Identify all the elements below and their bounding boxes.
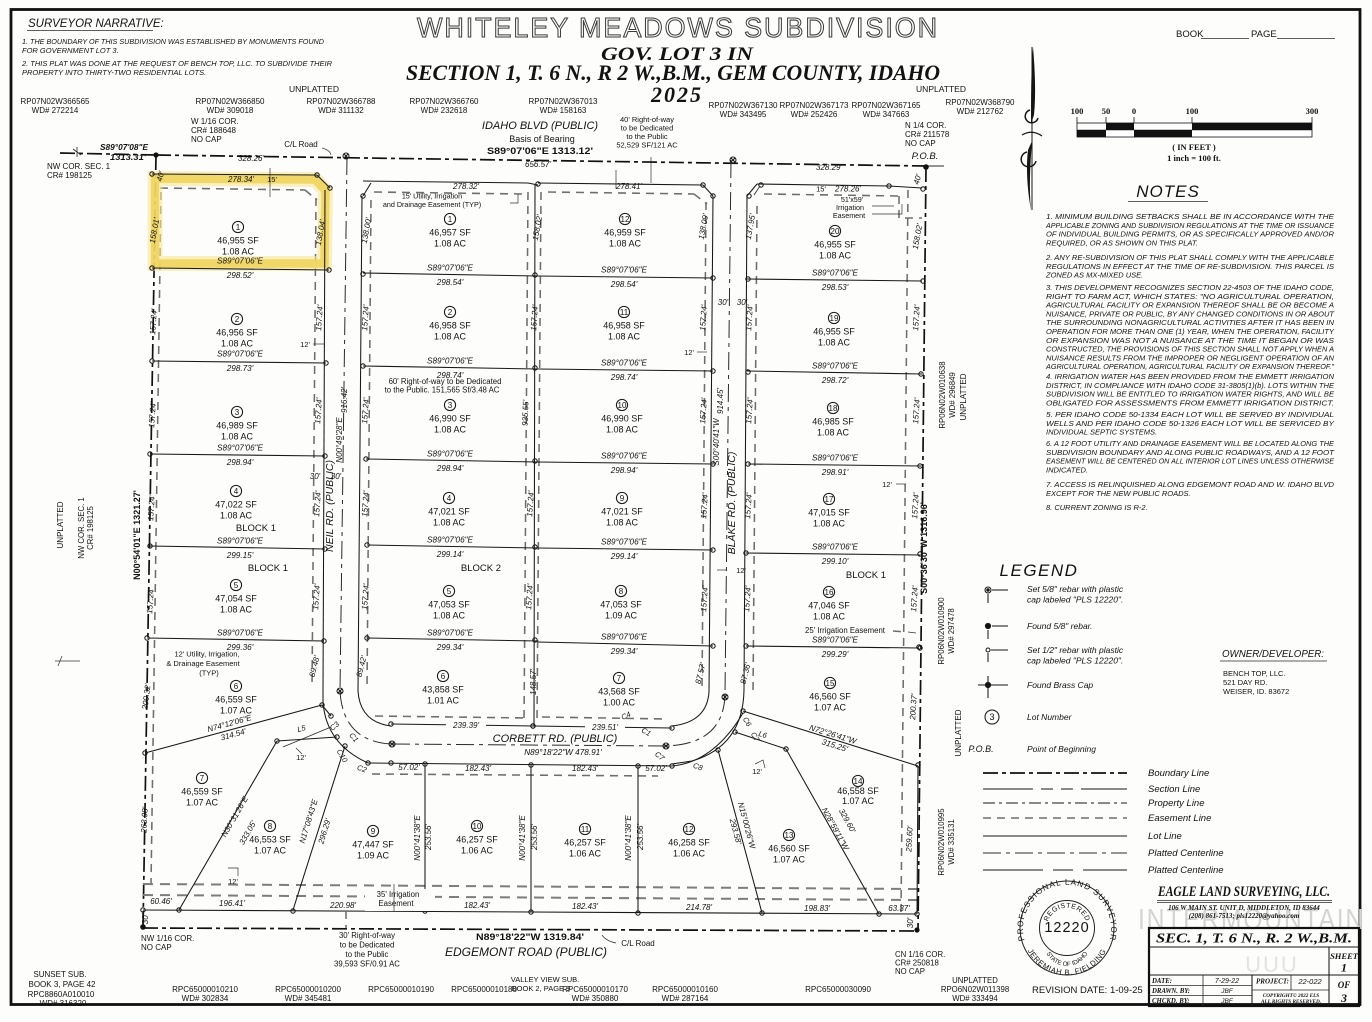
svg-text:ALL RIGHTS RESERVED.: ALL RIGHTS RESERVED. [1260,999,1321,1005]
svg-text:WD# 309018: WD# 309018 [207,106,254,115]
svg-text:278.26': 278.26' [834,185,861,194]
svg-text:3: 3 [448,401,453,410]
svg-text:157.24': 157.24' [360,583,371,610]
svg-text:EXCEPT FOR THE NEW PUBLIC: EXCEPT FOR THE NEW PUBLIC ROADS. [1046,489,1191,498]
svg-text:46,553 SF: 46,553 SF [249,835,291,845]
svg-text:57.02': 57.02' [645,764,667,773]
svg-text:157.24': 157.24' [360,397,371,424]
svg-text:1.06 AC: 1.06 AC [673,849,706,859]
svg-text:6: 6 [441,672,446,681]
svg-text:Easement: Easement [833,211,865,220]
svg-text:S89°07'06"E: S89°07'06"E [812,636,859,645]
svg-text:4: 4 [234,487,239,496]
svg-text:REQUIRED, OR AS SHOWN ON: REQUIRED, OR AS SHOWN ON THIS PLAT. [1046,238,1198,247]
svg-text:S89°07'06"E: S89°07'06"E [217,350,264,359]
svg-text:1.08 AC: 1.08 AC [433,611,466,621]
svg-text:157.24': 157.24' [313,397,324,424]
svg-text:CORBETT RD. (PUBLIC): CORBETT RD. (PUBLIC) [493,733,618,745]
svg-text:8: 8 [268,822,273,831]
svg-text:BOOK: BOOK [1176,29,1204,40]
svg-text:46,957 SF: 46,957 SF [429,228,471,238]
svg-text:RP07N02W366850: RP07N02W366850 [196,97,265,106]
svg-text:OR EXPANSION WAS NOT A NU: OR EXPANSION WAS NOT A NUISANCE AT THE T… [1046,336,1334,345]
svg-text:148.57': 148.57' [529,669,538,695]
svg-text:2. ANY RE-SUBDIVISION OF T: 2. ANY RE-SUBDIVISION OF THIS PLAT SHALL… [1045,253,1335,262]
svg-text:63.37': 63.37' [888,904,910,913]
svg-text:N00°41'38"E: N00°41'38"E [413,815,422,861]
svg-text:NW COR. SEC. 1: NW COR. SEC. 1 [77,497,86,559]
svg-text:RPC65000030090: RPC65000030090 [805,985,871,994]
svg-text:WELLS AND PER IDAHO CODE: WELLS AND PER IDAHO CODE 50-1326 EACH LO… [1046,419,1335,428]
svg-text:NUISANCE, PRIVATE OR PUBLIC: NUISANCE, PRIVATE OR PUBLIC, BY ANY CHAN… [1046,309,1335,318]
svg-text:12: 12 [621,215,630,224]
svg-text:Found Brass Cap: Found Brass Cap [1027,680,1093,690]
svg-text:S89°07'06"E: S89°07'06"E [601,359,648,368]
svg-text:PROPERTY INTO THIRTY-TWO RE: PROPERTY INTO THIRTY-TWO RESIDENTIAL LOT… [22,68,206,77]
svg-text:NO CAP: NO CAP [895,967,925,976]
svg-text:299.15': 299.15' [226,551,254,560]
svg-text:10: 10 [473,822,482,831]
svg-text:4. IRRIGATION WATER HAS BE: 4. IRRIGATION WATER HAS BEEN PROVIDED FR… [1046,372,1335,381]
svg-text:12': 12' [882,480,892,489]
svg-text:298.73': 298.73' [226,364,254,373]
svg-text:INDIVIDUAL SEPTIC SYSTEMS.: INDIVIDUAL SEPTIC SYSTEMS. [1046,428,1157,437]
svg-text:298.54': 298.54' [610,280,638,289]
svg-text:157.24': 157.24' [524,583,535,610]
svg-text:RP07N02W367013: RP07N02W367013 [529,97,598,106]
svg-text:914.45': 914.45' [716,388,725,414]
svg-text:CR# 198125: CR# 198125 [86,505,95,549]
svg-text:N00°41'38"E: N00°41'38"E [518,815,527,861]
svg-text:UNPLATTED: UNPLATTED [56,501,65,548]
svg-text:1.06 AC: 1.06 AC [461,846,494,856]
svg-text:253.56': 253.56' [424,824,433,851]
svg-text:1.07 AC: 1.07 AC [186,798,219,808]
svg-text:157.24': 157.24' [698,304,709,331]
svg-text:46,985 SF: 46,985 SF [812,417,854,427]
svg-text:299.10': 299.10' [821,557,849,566]
svg-text:157.24': 157.24' [744,397,755,424]
svg-text:RPC8860A010010: RPC8860A010010 [28,990,95,999]
svg-text:3. THIS DEVELOPMENT RECOGNIZ: 3. THIS DEVELOPMENT RECOGNIZES SECTION 2… [1046,283,1334,292]
svg-text:198.83': 198.83' [804,904,830,913]
svg-text:47,015 SF: 47,015 SF [808,508,850,518]
svg-text:REGULATIONS IN EFFECT AT T: REGULATIONS IN EFFECT AT THE TIME OF RE-… [1046,262,1334,271]
svg-text:RIGHT TO FARM ACT, WHICH: RIGHT TO FARM ACT, WHICH STATES: "NO AGR… [1046,292,1334,301]
svg-text:1.07 AC: 1.07 AC [814,703,847,713]
svg-text:299.14': 299.14' [610,552,638,561]
svg-text:WHITELEY MEADOWS SUBDIVISION: WHITELEY MEADOWS SUBDIVISION [417,12,939,43]
svg-text:30': 30' [906,917,915,928]
svg-text:P.O.B.: P.O.B. [912,151,939,162]
svg-text:1.08 AC: 1.08 AC [220,511,253,521]
svg-text:15: 15 [826,679,835,688]
svg-text:S89°07'08"E: S89°07'08"E [100,143,149,152]
svg-text:239.51': 239.51' [591,723,618,732]
svg-text:1.07 AC: 1.07 AC [254,846,287,856]
svg-text:UUU: UUU [1245,952,1299,977]
svg-text:WD# 212762: WD# 212762 [957,107,1004,116]
svg-text:N00°49'28"E: N00°49'28"E [335,417,344,463]
svg-text:& Drainage Easement: & Drainage Easement [166,659,240,668]
svg-text:1.06 AC: 1.06 AC [569,849,602,859]
svg-text:196.41': 196.41' [219,899,245,908]
svg-text:13: 13 [785,831,794,840]
svg-text:43,858 SF: 43,858 SF [422,685,464,695]
svg-text:1. MINIMUM BUILDING SETBACK: 1. MINIMUM BUILDING SETBACKS SHALL BE IN… [1046,212,1335,221]
svg-text:12220: 12220 [1044,920,1089,936]
svg-text:S89°07'06"E: S89°07'06"E [601,266,648,275]
svg-text:14: 14 [854,777,863,786]
svg-text:CR# 198125: CR# 198125 [47,171,92,180]
svg-text:6: 6 [234,682,239,691]
svg-text:WD# 347663: WD# 347663 [863,110,910,119]
svg-text:WD# 158163: WD# 158163 [540,106,587,115]
svg-text:100: 100 [1186,106,1199,116]
svg-text:( IN FEET ): ( IN FEET ) [1172,142,1216,152]
svg-text:Platted Centerline: Platted Centerline [1148,848,1224,859]
svg-text:298.94': 298.94' [226,458,254,467]
svg-text:11: 11 [581,825,590,834]
svg-text:12': 12' [228,877,238,886]
svg-text:8: 8 [619,587,624,596]
svg-text:3: 3 [989,712,994,722]
svg-text:1.08 AC: 1.08 AC [433,518,466,528]
svg-text:1.08 AC: 1.08 AC [818,338,851,348]
svg-text:1.08 AC: 1.08 AC [817,428,850,438]
svg-text:1.00 AC: 1.00 AC [603,698,636,708]
svg-text:1.08 AC: 1.08 AC [221,432,254,442]
svg-text:INDICATED.: INDICATED. [1046,465,1088,474]
svg-text:9: 9 [620,494,625,503]
svg-text:OBLIGATED FOR ASSESSMENTS F: OBLIGATED FOR ASSESSMENTS FROM EMMETT IR… [1046,398,1334,407]
svg-text:7. ACCESS IS RELINQUISHED: 7. ACCESS IS RELINQUISHED ALONG EDGEMONT… [1046,480,1335,489]
svg-text:1.01 AC: 1.01 AC [427,696,460,706]
svg-text:WD# 232618: WD# 232618 [421,106,468,115]
svg-text:BLAKE RD. (PUBLIC): BLAKE RD. (PUBLIC) [726,452,738,555]
svg-text:P.O.B.: P.O.B. [968,744,993,754]
svg-text:11: 11 [620,308,629,317]
svg-text:46,559 SF: 46,559 SF [181,787,223,797]
svg-text:157.24': 157.24' [743,492,754,519]
svg-text:RPO6N02W011398: RPO6N02W011398 [941,985,1009,994]
svg-text:N00°54'01"E 1321.27': N00°54'01"E 1321.27' [132,490,142,580]
svg-text:EDGEMONT ROAD (PUBLIC): EDGEMONT ROAD (PUBLIC) [445,945,607,959]
svg-text:1.08 AC: 1.08 AC [222,247,255,257]
svg-text:UNPLATTED: UNPLATTED [952,976,998,985]
svg-text:THE SURROUNDING NONAGRICULTU: THE SURROUNDING NONAGRICULTURAL ACTIVITI… [1046,318,1335,327]
svg-text:46,257 SF: 46,257 SF [564,838,606,848]
svg-text:WD# 316320: WD# 316320 [40,999,87,1008]
svg-text:3: 3 [1340,991,1347,1005]
svg-text:APPLICABLE ZONING AND SUBDI: APPLICABLE ZONING AND SUBDIVISION REGULA… [1045,221,1335,230]
svg-text:BLOCK 1: BLOCK 1 [248,563,288,574]
svg-text:7-29-22: 7-29-22 [1215,978,1239,985]
svg-text:WD# 350880: WD# 350880 [572,994,619,1003]
svg-text:RP07N02W367165: RP07N02W367165 [852,101,921,110]
svg-text:46,958 SF: 46,958 SF [429,321,471,331]
svg-text:4: 4 [447,494,452,503]
svg-text:2025: 2025 [650,82,703,107]
svg-text:46,955 SF: 46,955 SF [813,327,855,337]
svg-text:COPYRIGHT© 2022 ELS: COPYRIGHT© 2022 ELS [1263,992,1319,999]
svg-text:IDAHO BLVD (PUBLIC): IDAHO BLVD (PUBLIC) [482,120,598,132]
svg-text:WEISER, ID. 83672: WEISER, ID. 83672 [1223,687,1289,696]
svg-text:298.94': 298.94' [436,464,464,473]
svg-text:1.08 AC: 1.08 AC [606,425,639,435]
svg-text:NO CAP: NO CAP [141,943,172,952]
svg-text:8. CURRENT ZONING IS R-2.: 8. CURRENT ZONING IS R-2. [1046,503,1148,512]
svg-text:5: 5 [234,581,239,590]
svg-text:SEC. 1, T. 6 N., R. 2 W: SEC. 1, T. 6 N., R. 2 W.,B.M. [1156,931,1352,946]
svg-text:1.08 AC: 1.08 AC [813,519,846,529]
svg-text:PROJECT:: PROJECT: [1256,978,1289,986]
svg-text:157.24': 157.24' [360,490,371,517]
svg-text:RP07N02W367130: RP07N02W367130 [709,101,778,110]
svg-text:46,956 SF: 46,956 SF [216,328,258,338]
svg-text:WD# 335131: WD# 335131 [947,819,956,865]
svg-text:BENCH TOP, LLC.: BENCH TOP, LLC. [1223,669,1286,678]
svg-text:47,022 SF: 47,022 SF [215,500,257,510]
svg-text:RP06N02W010638: RP06N02W010638 [938,361,947,428]
svg-text:1.08 AC: 1.08 AC [434,239,467,249]
svg-text:47,447 SF: 47,447 SF [352,840,394,850]
svg-text:57.02': 57.02' [398,763,420,772]
svg-text:WD# 272214: WD# 272214 [32,106,79,115]
svg-text:1. THE BOUNDARY OF THIS: 1. THE BOUNDARY OF THIS SUBDIVISION WAS … [22,37,325,46]
svg-text:298.94': 298.94' [610,466,638,475]
svg-text:43,568 SF: 43,568 SF [598,687,640,697]
svg-text:DRAWN. BY:: DRAWN. BY: [1151,988,1190,995]
svg-text:47,053 SF: 47,053 SF [600,600,642,610]
svg-text:182.43': 182.43' [464,901,490,910]
svg-text:WD# 296849: WD# 296849 [948,372,957,418]
svg-text:298.91': 298.91' [821,468,849,477]
svg-text:BLOCK 1: BLOCK 1 [236,523,276,534]
svg-text:46,558 SF: 46,558 SF [837,786,879,796]
svg-text:to the Public: to the Public [346,950,389,959]
svg-text:S89°07'06"E: S89°07'06"E [812,454,859,463]
svg-text:RP07N02W367173: RP07N02W367173 [780,101,849,110]
svg-text:47,021 SF: 47,021 SF [428,507,470,517]
svg-text:UNPLATTED: UNPLATTED [954,709,963,756]
svg-text:157.24': 157.24' [360,304,371,331]
svg-text:NO CAP: NO CAP [191,135,222,144]
svg-text:NO CAP: NO CAP [905,139,936,148]
svg-text:JBF: JBF [1220,998,1234,1005]
svg-text:5. PER IDAHO CODE 50-1334: 5. PER IDAHO CODE 50-1334 EACH LOT WILL … [1046,410,1334,419]
svg-text:17: 17 [825,495,834,504]
svg-text:RP07N02W366565: RP07N02W366565 [21,97,90,106]
svg-text:157.24': 157.24' [742,585,753,612]
svg-text:RP06N02W010900: RP06N02W010900 [937,597,946,665]
svg-text:CHCKD. BY:: CHCKD. BY: [1152,998,1190,1005]
svg-text:EASEMENT WILL BE CENTERED: EASEMENT WILL BE CENTERED ON ALL INTERIO… [1046,457,1335,466]
svg-text:1: 1 [448,215,453,224]
svg-text:REVISION DATE: 1-09-25: REVISION DATE: 1-09-25 [1032,985,1143,996]
svg-text:1.08 AC: 1.08 AC [819,251,852,261]
svg-text:182.43': 182.43' [572,764,598,773]
svg-text:DISTRICT, IN COMPLIANCE WIT: DISTRICT, IN COMPLIANCE WITH IDAHO CODE … [1046,381,1335,390]
svg-text:19: 19 [830,314,839,323]
svg-text:1.09 AC: 1.09 AC [605,611,638,621]
svg-text:157.24': 157.24' [525,490,536,517]
svg-text:9: 9 [371,827,376,836]
svg-text:20: 20 [831,227,840,236]
svg-text:Lot Line: Lot Line [1148,831,1182,842]
svg-text:S89°07'06"E: S89°07'06"E [601,452,648,461]
svg-text:2: 2 [235,315,240,324]
svg-text:S89°07'06"E: S89°07'06"E [217,444,264,453]
svg-text:SHEET: SHEET [1330,951,1359,961]
svg-text:1.08 AC: 1.08 AC [813,612,846,622]
svg-text:157.24': 157.24' [911,304,922,331]
svg-text:50: 50 [1102,106,1111,116]
svg-text:157.24': 157.24' [148,308,159,335]
svg-text:1.08 AC: 1.08 AC [434,425,467,435]
svg-text:935.55': 935.55' [521,399,531,426]
svg-text:157.24': 157.24' [699,492,710,519]
svg-text:DATE:: DATE: [1151,978,1172,985]
svg-text:298.54': 298.54' [436,278,464,287]
svg-text:60.46': 60.46' [150,897,172,906]
svg-text:157.24': 157.24' [314,304,325,331]
svg-text:S00°40'41"W: S00°40'41"W [712,417,721,466]
svg-text:12: 12 [685,825,694,834]
svg-text:Boundary Line: Boundary Line [1148,768,1209,779]
svg-text:S89°07'06"E: S89°07'06"E [217,257,264,266]
svg-text:WD# 345481: WD# 345481 [285,994,332,1003]
svg-text:S89°07'06"E: S89°07'06"E [217,629,264,638]
svg-text:SUBDIVISION BOUNDARY AND AL: SUBDIVISION BOUNDARY AND ALONG PUBLIC RO… [1046,448,1335,457]
svg-text:RPC65000010210: RPC65000010210 [172,985,238,994]
svg-text:15': 15' [267,175,277,184]
svg-text:157.24': 157.24' [145,587,156,614]
svg-text:46,990 SF: 46,990 SF [601,414,643,424]
svg-text:298.53': 298.53' [821,283,849,292]
svg-text:RPC65000010180: RPC65000010180 [451,985,517,994]
svg-text:UNPLATTED: UNPLATTED [289,84,339,94]
svg-text:30' Right-of-way: 30' Right-of-way [339,931,395,940]
svg-text:1.08 AC: 1.08 AC [221,339,254,349]
svg-text:WD# 252426: WD# 252426 [791,110,838,119]
svg-text:46,257 SF: 46,257 SF [456,835,498,845]
svg-text:157.24': 157.24' [146,494,157,521]
svg-text:RP07N02W366788: RP07N02W366788 [307,97,376,106]
svg-text:Platted Centerline: Platted Centerline [1148,865,1224,876]
svg-text:46,959 SF: 46,959 SF [604,228,646,238]
svg-text:S89°07'06"E: S89°07'06"E [217,537,264,546]
svg-text:47,054 SF: 47,054 SF [215,594,257,604]
svg-text:10: 10 [618,401,627,410]
svg-text:Set 1/2" rebar with plastic: Set 1/2" rebar with plastic [1027,645,1124,655]
svg-text:1 inch = 100 ft.: 1 inch = 100 ft. [1167,153,1221,163]
svg-text:JBF: JBF [1220,988,1234,995]
svg-text:Easement Line: Easement Line [1148,813,1211,824]
svg-text:(208) 861-7513; pls12220@yaho: (208) 861-7513; pls12220@yahoo.com [1189,912,1300,920]
svg-text:RPC65000010170: RPC65000010170 [562,985,628,994]
svg-text:Lot Number: Lot Number [1027,712,1073,722]
svg-text:157.24': 157.24' [529,304,540,331]
svg-text:35' Irrigation: 35' Irrigation [377,890,420,899]
svg-text:UNPLATTED: UNPLATTED [916,84,966,94]
svg-text:182.43': 182.43' [465,764,491,773]
svg-text:6. A 12 FOOT UTILITY AND: 6. A 12 FOOT UTILITY AND DRAINAGE EASEME… [1046,439,1335,448]
svg-text:C/L Road: C/L Road [621,939,655,948]
svg-text:OPERATION FOR MORE THAN ON: OPERATION FOR MORE THAN ONE (1) YEAR, WH… [1046,327,1335,336]
svg-text:Point of Beginning: Point of Beginning [1027,744,1096,754]
svg-text:WD# 302834: WD# 302834 [182,994,229,1003]
svg-text:253.56': 253.56' [530,824,539,851]
svg-text:cap labeled "PLS 12220".: cap labeled "PLS 12220". [1027,656,1123,666]
svg-text:OF INDIVIDUAL BUILDING PERM: OF INDIVIDUAL BUILDING PERMITS, OR AS SP… [1046,230,1335,239]
svg-text:157.24': 157.24' [147,401,158,428]
svg-text:278.41': 278.41' [615,182,642,191]
svg-text:46,258 SF: 46,258 SF [668,838,710,848]
svg-text:NUISANCE RESULTS FROM THE: NUISANCE RESULTS FROM THE IMPROPER OR NE… [1046,353,1335,362]
svg-text:7: 7 [617,674,622,683]
svg-text:16: 16 [825,588,834,597]
svg-text:47,021 SF: 47,021 SF [601,507,643,517]
svg-text:30': 30' [141,913,150,924]
svg-text:Set 5/8" rebar with plastic: Set 5/8" rebar with plastic [1027,584,1124,594]
svg-text:39,593 SF/0.91 AC: 39,593 SF/0.91 AC [334,960,400,969]
svg-text:RPC65000010190: RPC65000010190 [368,985,434,994]
svg-text:CONSTRUCTED, THE PROVISIONS: CONSTRUCTED, THE PROVISIONS OF THIS SECT… [1046,345,1334,354]
svg-text:UNPLATTED: UNPLATTED [959,373,968,420]
svg-text:CR# 188648: CR# 188648 [191,126,236,135]
svg-text:12': 12' [296,753,306,762]
svg-text:7: 7 [200,774,205,783]
svg-text:299.34': 299.34' [610,647,638,656]
svg-text:46,560 SF: 46,560 SF [768,844,810,854]
svg-text:1.08 AC: 1.08 AC [608,332,641,342]
svg-text:298.52': 298.52' [226,271,254,280]
svg-text:RP06N02W010995: RP06N02W010995 [937,808,946,876]
svg-text:ZONED AS MX-MIXED USE.: ZONED AS MX-MIXED USE. [1045,271,1143,280]
svg-text:S89°07'06"E: S89°07'06"E [812,543,859,552]
svg-text:263.98': 263.98' [139,806,149,834]
svg-text:100: 100 [1071,106,1084,116]
svg-text:1.08 AC: 1.08 AC [220,605,253,615]
svg-text:157.24': 157.24' [744,304,755,331]
svg-text:521 DAY RD.: 521 DAY RD. [1223,678,1267,687]
svg-text:12': 12' [752,767,762,776]
svg-text:AGRICULTURAL FACILITY OR EX: AGRICULTURAL FACILITY OR EXPANSION THERE… [1045,301,1334,310]
svg-text:46,955 SF: 46,955 SF [217,236,259,246]
svg-text:253.56': 253.56' [636,824,645,851]
svg-text:22-022: 22-022 [1297,977,1322,986]
svg-text:157.24': 157.24' [699,585,710,612]
svg-text:OWNER/DEVELOPER:: OWNER/DEVELOPER: [1222,649,1324,660]
svg-text:47,053 SF: 47,053 SF [428,600,470,610]
svg-text:(TYP): (TYP) [199,669,219,678]
svg-text:S89°07'06"E: S89°07'06"E [427,536,474,545]
svg-text:NOTES: NOTES [1136,182,1200,201]
svg-text:SUNSET SUB.: SUNSET SUB. [33,970,86,979]
svg-text:299.29': 299.29' [821,650,849,659]
svg-text:298.74': 298.74' [610,373,638,382]
svg-text:S89°07'06"E: S89°07'06"E [601,633,648,642]
svg-text:299.14': 299.14' [436,550,464,559]
svg-text:1.07 AC: 1.07 AC [773,855,806,865]
svg-text:WD# 287164: WD# 287164 [662,994,709,1003]
svg-text:C/L Road: C/L Road [284,140,318,149]
svg-text:220.98': 220.98' [329,901,356,910]
svg-text:S00°36'30"W 1316.96': S00°36'30"W 1316.96' [919,502,929,594]
svg-text:WD# 297478: WD# 297478 [947,608,956,654]
svg-text:2. THIS PLAT WAS DONE AT: 2. THIS PLAT WAS DONE AT THE REQUEST OF … [21,59,333,68]
